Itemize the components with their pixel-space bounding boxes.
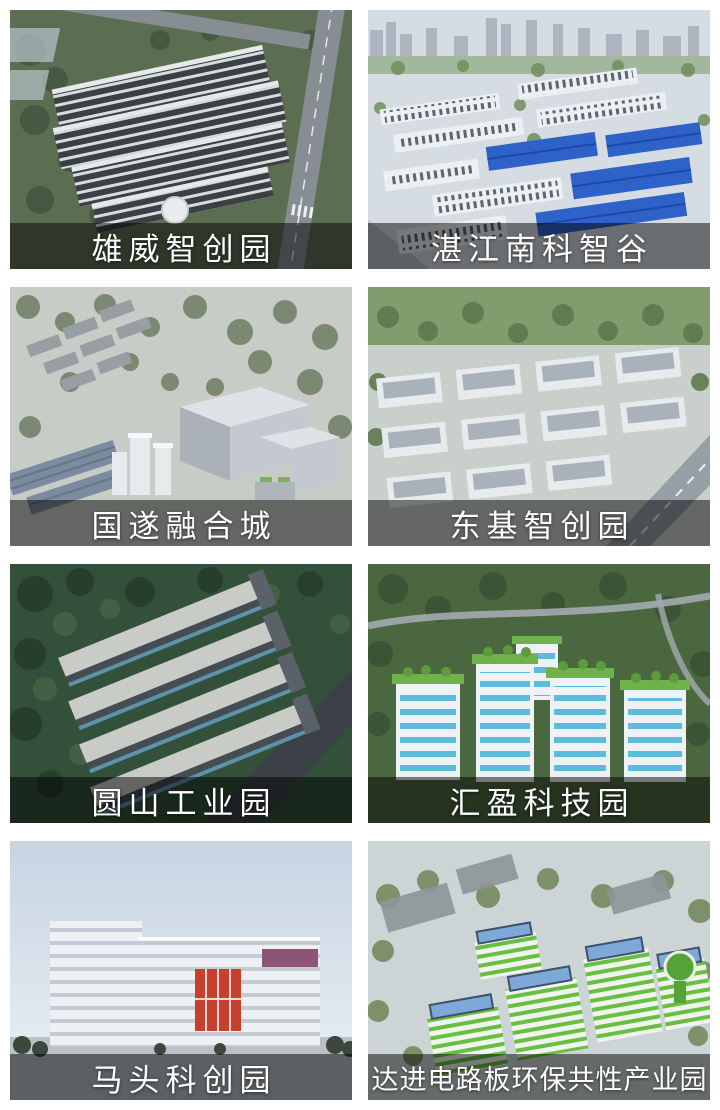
park-caption: 东基智创园 xyxy=(368,500,710,546)
park-card-matou[interactable]: 马头科创园 xyxy=(10,841,352,1100)
park-card-xiongwei[interactable]: 雄威智创园 xyxy=(10,10,352,269)
park-card-dajin[interactable]: 达进电路板环保共性产业园 xyxy=(368,841,710,1100)
park-caption: 汇盈科技园 xyxy=(368,777,710,823)
park-gallery: 雄威智创园 xyxy=(10,10,710,1100)
park-card-dongji[interactable]: 东基智创园 xyxy=(368,287,710,546)
park-card-guosui[interactable]: 国遂融合城 xyxy=(10,287,352,546)
park-caption: 雄威智创园 xyxy=(10,223,352,269)
park-caption: 圆山工业园 xyxy=(10,777,352,823)
park-caption: 湛江南科智谷 xyxy=(368,223,710,269)
park-card-zhanjiang[interactable]: 湛江南科智谷 xyxy=(368,10,710,269)
park-caption: 马头科创园 xyxy=(10,1054,352,1100)
park-caption: 国遂融合城 xyxy=(10,500,352,546)
park-caption: 达进电路板环保共性产业园 xyxy=(368,1054,710,1100)
park-card-huiying[interactable]: 汇盈科技园 xyxy=(368,564,710,823)
park-card-yuanshan[interactable]: 圆山工业园 xyxy=(10,564,352,823)
